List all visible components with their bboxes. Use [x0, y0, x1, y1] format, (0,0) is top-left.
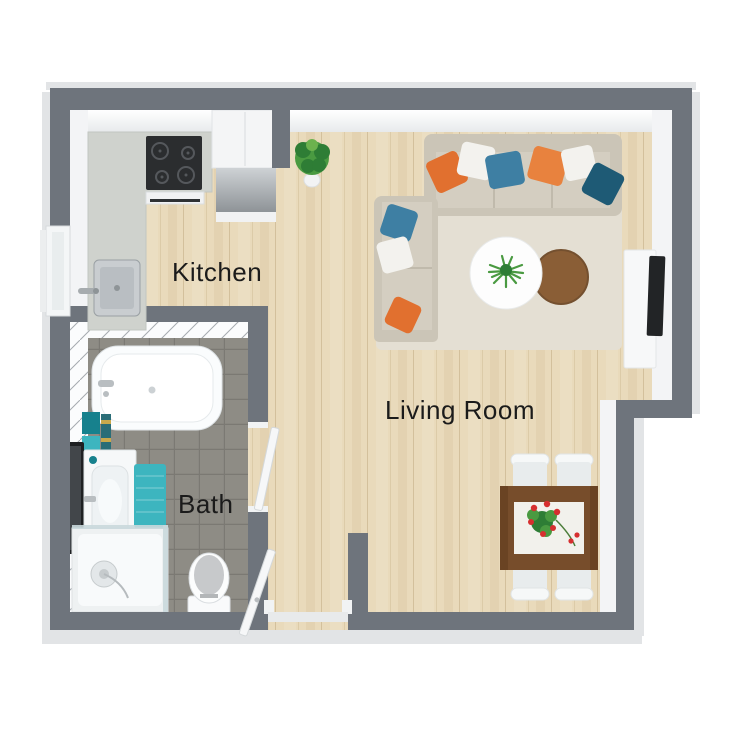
- threshold: [268, 612, 348, 622]
- bathroom: [50, 306, 268, 614]
- cooktop: [146, 136, 202, 190]
- kitchen-window: [40, 226, 70, 316]
- bath-mat: [134, 464, 166, 528]
- right-wall-upper: [672, 88, 692, 418]
- appliance-unit: [216, 168, 276, 222]
- bath-label: Bath: [178, 489, 234, 519]
- kitchen-label: Kitchen: [172, 257, 262, 287]
- bath-right-wall-upper: [248, 306, 268, 428]
- bathtub: [92, 346, 222, 430]
- floor-plan-svg: Kitchen Living Room Bath: [0, 0, 740, 740]
- bath-wall-tiles-top: [50, 322, 268, 338]
- bath-partition-wall: [50, 306, 268, 322]
- towels: [82, 412, 111, 456]
- bottom-wall-bath: [50, 612, 268, 630]
- floor-plan-image: Kitchen Living Room Bath: [0, 0, 740, 740]
- entry-living-wall-stub: [348, 533, 368, 630]
- top-wall: [50, 88, 692, 110]
- walk-in-shower: [72, 525, 168, 612]
- oven-front: [146, 192, 204, 204]
- bottom-wall-living: [368, 612, 634, 630]
- tall-cabinet: [212, 110, 278, 168]
- left-wall: [50, 88, 70, 630]
- toilet: [188, 553, 230, 614]
- living-room-label: Living Room: [385, 395, 535, 425]
- tv: [647, 256, 666, 337]
- right-wall-lower: [616, 418, 634, 630]
- right-wall-jog: [616, 400, 692, 418]
